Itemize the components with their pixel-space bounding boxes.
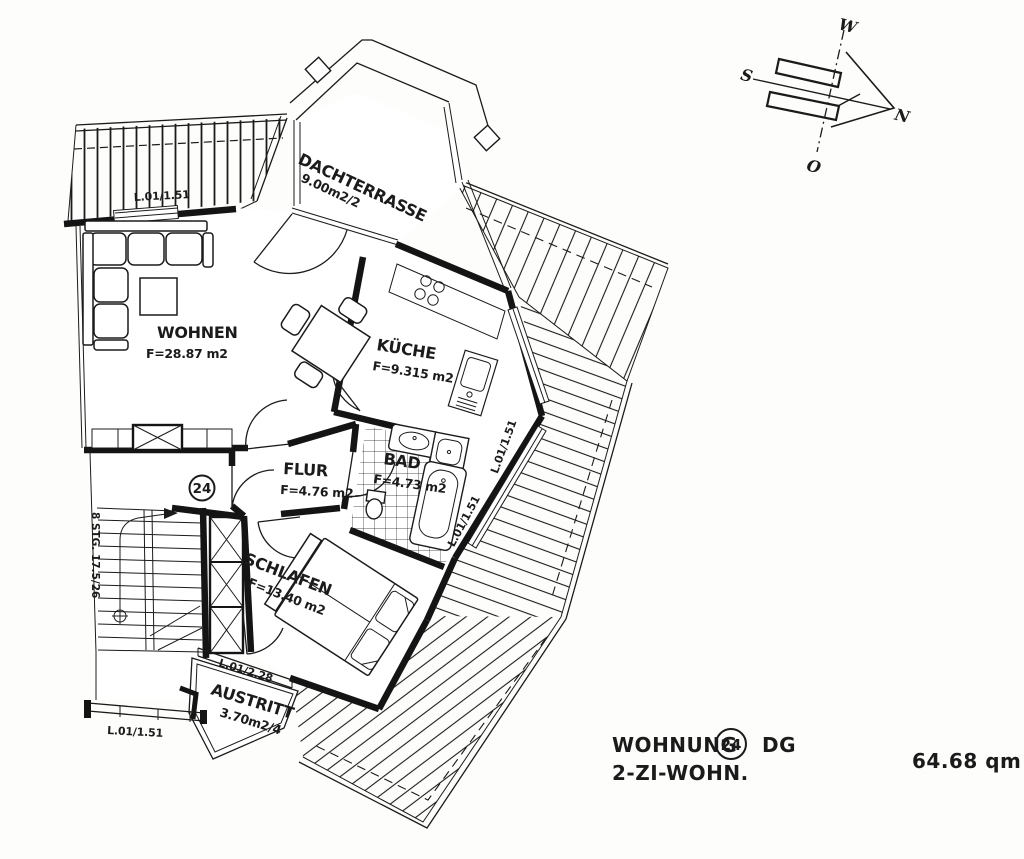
room-area-wohnen: F=28.87 m2 [146, 346, 228, 361]
floor-plan-drawing: 8 STG. 17.5/26 24 [0, 0, 1024, 859]
installation-shaft [210, 517, 243, 653]
stair-label: 8 STG. 17.5/26 [89, 512, 101, 598]
title-apartment-number: 24 [721, 736, 742, 754]
coffee-table [140, 278, 177, 315]
terrace-post [474, 125, 499, 150]
terrace-post [305, 57, 330, 82]
compass-rose: W S N O [739, 15, 913, 178]
compass-east: O [805, 156, 823, 178]
title-type: 2-ZI-WOHN. [612, 761, 749, 785]
room-label-wohnen: WOHNEN [157, 323, 238, 342]
room-label-flur: FLUR [283, 459, 329, 480]
terrace-railing [68, 114, 287, 221]
window-living-band [92, 425, 232, 450]
compass-south: S [739, 65, 755, 86]
floor-plan-sheet: 8 STG. 17.5/26 24 [0, 0, 1024, 859]
title-block: WOHNUNG 24 DG 2-ZI-WOHN. 64.68 qm [612, 729, 1021, 785]
title-floor: DG [762, 733, 796, 757]
compass-west: W [837, 15, 861, 38]
title-total-area: 64.68 qm [912, 749, 1021, 773]
window-label-stairwell: L.01/1.51 [107, 724, 163, 740]
window-stairwell-bottom [84, 700, 207, 724]
apartment-number: 24 [193, 481, 212, 497]
apartment-number-badge: 24 [190, 476, 215, 501]
compass-wo-axis [817, 30, 844, 152]
